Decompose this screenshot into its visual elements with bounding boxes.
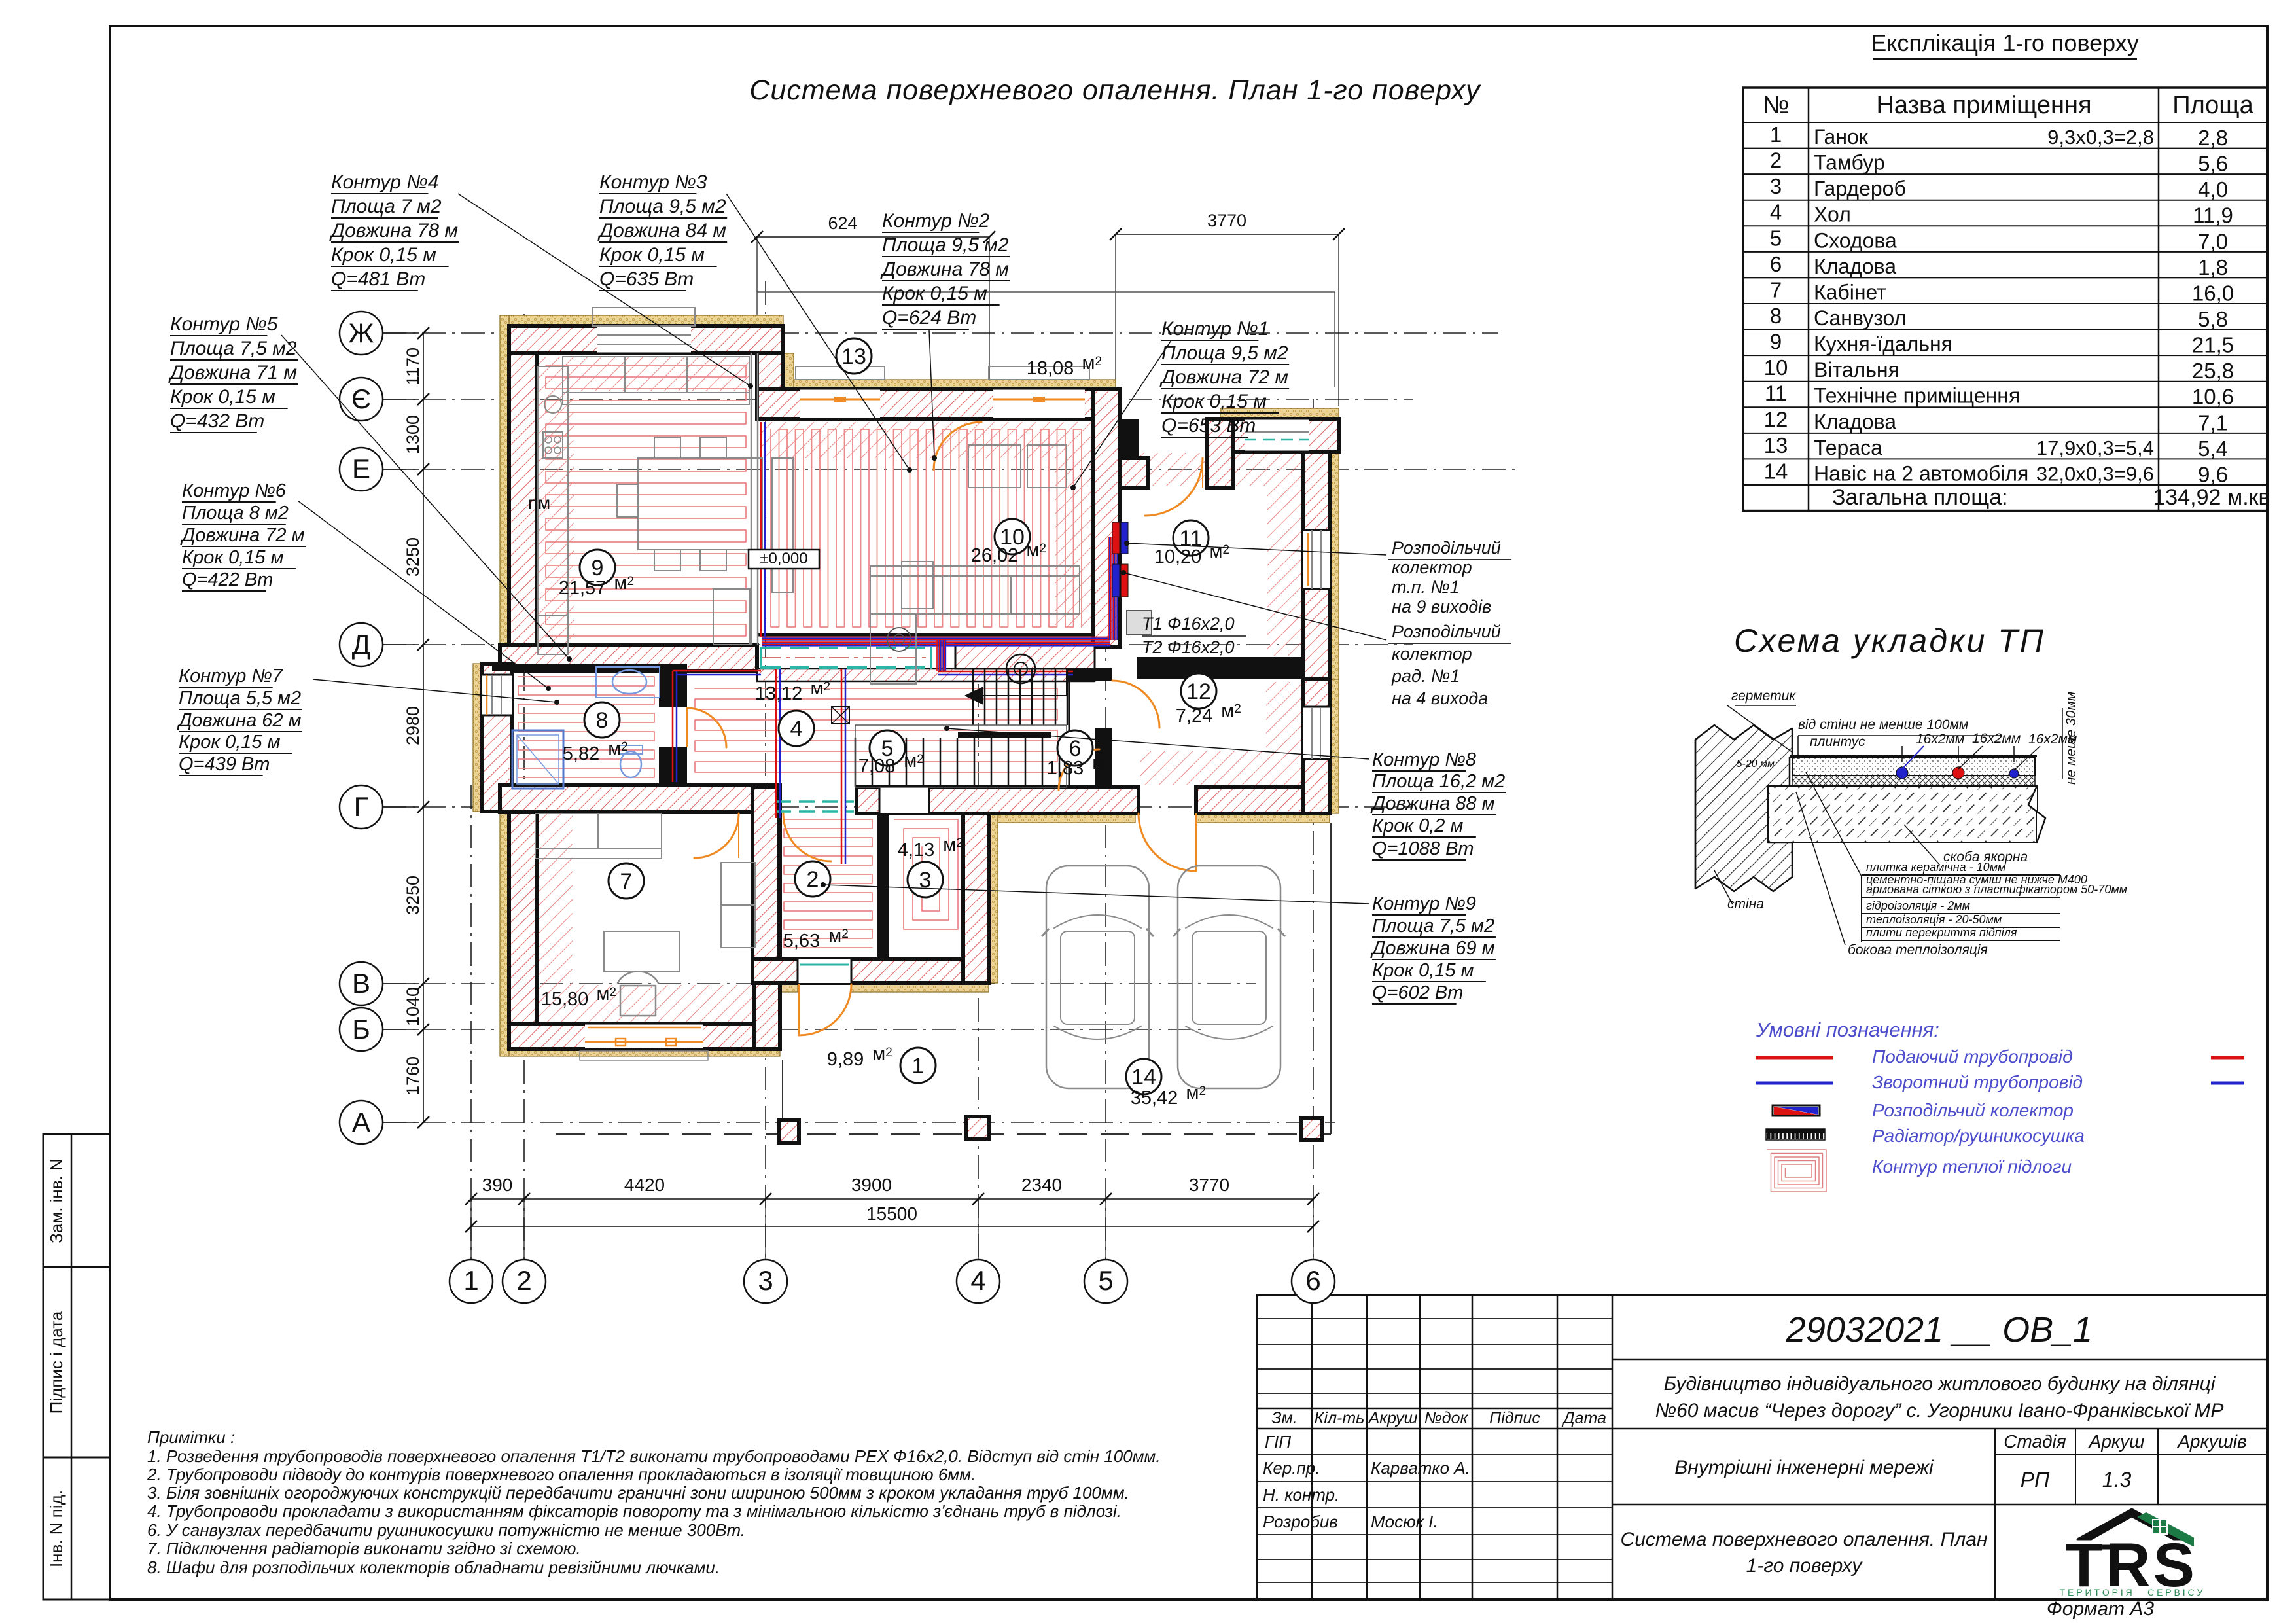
svg-text:2. Трубопроводи підводу до кон: 2. Трубопроводи підводу до контурів пове… — [147, 1465, 976, 1484]
svg-text:Крок 0,15 м: Крок 0,15 м — [882, 283, 987, 304]
svg-text:Площа 7,5 м2: Площа 7,5 м2 — [170, 338, 297, 359]
svg-text:Площа 7,5 м2: Площа 7,5 м2 — [1372, 916, 1494, 936]
svg-text:Інв. N під.: Інв. N під. — [46, 1490, 66, 1567]
svg-text:№: № — [1763, 92, 1790, 119]
svg-text:№док: №док — [1424, 1409, 1469, 1427]
svg-text:Q=481 Вт: Q=481 Вт — [331, 268, 425, 290]
svg-text:Площа: Площа — [2172, 92, 2253, 119]
svg-text:14: 14 — [1764, 459, 1788, 483]
svg-text:2980: 2980 — [403, 706, 423, 745]
svg-text:м: м — [872, 1044, 885, 1065]
svg-text:Подаючий трубопровід: Подаючий трубопровід — [1872, 1046, 2073, 1067]
svg-text:Довжина 78 м: Довжина 78 м — [329, 220, 458, 241]
svg-text:Розробив: Розробив — [1263, 1512, 1338, 1531]
svg-text:Тераса: Тераса — [1814, 436, 1882, 459]
svg-text:1,8: 1,8 — [2198, 255, 2228, 279]
svg-text:плинтус: плинтус — [1810, 734, 1865, 749]
svg-text:2: 2 — [610, 986, 617, 999]
svg-text:Е: Е — [352, 454, 370, 484]
svg-text:Кер.пр.: Кер.пр. — [1263, 1458, 1320, 1478]
svg-text:Тамбур: Тамбур — [1814, 151, 1885, 175]
svg-text:Контур №2: Контур №2 — [882, 210, 990, 232]
svg-text:Аркушів: Аркушів — [2176, 1431, 2247, 1452]
svg-text:1. Розведення трубопроводів по: 1. Розведення трубопроводів поверхневого… — [147, 1446, 1161, 1466]
svg-text:Площа 7 м2: Площа 7 м2 — [331, 196, 442, 217]
svg-text:колектор: колектор — [1392, 558, 1472, 577]
svg-text:не меше 30мм: не меше 30мм — [2064, 692, 2079, 785]
svg-text:Вітальня: Вітальня — [1814, 358, 1899, 382]
svg-text:1300: 1300 — [403, 415, 423, 454]
svg-text:Контур №6: Контур №6 — [182, 480, 287, 501]
svg-text:624: 624 — [828, 213, 857, 233]
svg-text:134,92 м.кв: 134,92 м.кв — [2153, 485, 2270, 510]
svg-text:м: м — [1082, 353, 1095, 374]
svg-text:Б: Б — [352, 1014, 370, 1044]
svg-text:на 9 виходів: на 9 виходів — [1392, 597, 1491, 616]
svg-text:6: 6 — [1770, 252, 1782, 276]
svg-text:13,12: 13,12 — [755, 683, 803, 704]
svg-text:9,3х0,3=2,8: 9,3х0,3=2,8 — [2047, 126, 2154, 149]
svg-text:4. Трубопроводи прокладати з в: 4. Трубопроводи прокладати з використанн… — [147, 1501, 1122, 1521]
svg-text:2: 2 — [807, 867, 819, 892]
svg-text:Довжина 62 м: Довжина 62 м — [177, 710, 302, 731]
svg-text:Система поверхневого опаленн: Система поверхневого опалення. План 1-го… — [749, 75, 1481, 106]
svg-text:Зам. інв. N: Зам. інв. N — [46, 1158, 66, 1243]
svg-text:2: 2 — [621, 740, 628, 754]
svg-text:5,63: 5,63 — [783, 931, 820, 952]
svg-text:Площа 5,5 м2: Площа 5,5 м2 — [179, 688, 301, 709]
svg-text:2: 2 — [1105, 755, 1112, 768]
svg-text:пм: пм — [528, 493, 550, 513]
svg-text:2: 2 — [627, 575, 635, 588]
svg-text:Контур №3: Контур №3 — [599, 171, 707, 193]
svg-text:9: 9 — [592, 556, 604, 580]
svg-text:Кухня-їдальня: Кухня-їдальня — [1814, 332, 1952, 356]
svg-text:Сходова: Сходова — [1814, 228, 1897, 252]
svg-text:Т1 Ф16х2,0: Т1 Ф16х2,0 — [1142, 614, 1235, 633]
svg-text:6: 6 — [1305, 1265, 1320, 1296]
svg-text:3250: 3250 — [403, 537, 423, 577]
svg-text:плити перекриття підпіля: плити перекриття підпіля — [1866, 926, 2017, 939]
svg-text:14: 14 — [1131, 1065, 1156, 1090]
svg-text:7,08: 7,08 — [858, 756, 895, 777]
svg-text:Q=635 Вт: Q=635 Вт — [599, 268, 694, 290]
svg-text:Підпис і дата: Підпис і дата — [46, 1311, 66, 1414]
svg-text:Крок 0,15 м: Крок 0,15 м — [1161, 391, 1267, 412]
svg-text:1-го поверху: 1-го поверху — [1746, 1555, 1863, 1577]
svg-text:м: м — [1027, 540, 1040, 561]
svg-text:Довжина 72 м: Довжина 72 м — [1159, 366, 1288, 388]
svg-text:Д: Д — [352, 629, 370, 660]
svg-text:13: 13 — [841, 344, 866, 369]
svg-text:2: 2 — [1223, 543, 1230, 557]
svg-text:2: 2 — [841, 927, 849, 941]
svg-text:м: м — [608, 738, 621, 759]
svg-text:Крок 0,15 м: Крок 0,15 м — [331, 244, 436, 266]
svg-text:4,0: 4,0 — [2198, 177, 2228, 202]
svg-text:бокова теплоізоляція: бокова теплоізоляція — [1848, 942, 1988, 957]
svg-text:Акруш: Акруш — [1368, 1409, 1418, 1427]
svg-text:Карватко А.: Карватко А. — [1371, 1458, 1470, 1478]
svg-text:Технічне приміщення: Технічне приміщення — [1814, 384, 2020, 408]
svg-text:1170: 1170 — [403, 348, 423, 385]
svg-text:Аркуш: Аркуш — [2088, 1431, 2145, 1452]
svg-text:25,8: 25,8 — [2192, 359, 2234, 383]
svg-text:5,4: 5,4 — [2198, 437, 2228, 461]
svg-text:3: 3 — [1770, 174, 1782, 198]
svg-text:Q=602 Вт: Q=602 Вт — [1372, 982, 1463, 1003]
svg-text:5,82: 5,82 — [563, 743, 599, 764]
svg-text:4420: 4420 — [624, 1175, 665, 1195]
svg-text:Зм.: Зм. — [1271, 1409, 1297, 1427]
svg-text:Підпис: Підпис — [1489, 1409, 1540, 1427]
svg-text:4: 4 — [790, 717, 803, 741]
svg-text:2: 2 — [516, 1265, 531, 1296]
svg-text:Загальна площа:: Загальна площа: — [1832, 485, 2008, 510]
svg-text:4: 4 — [1770, 200, 1782, 224]
svg-text:35,42: 35,42 — [1131, 1088, 1178, 1109]
svg-text:6. У санвузлах передбачити руш: 6. У санвузлах передбачити рушникосушки … — [147, 1520, 745, 1540]
svg-text:7,24: 7,24 — [1176, 705, 1212, 726]
svg-text:Кладова: Кладова — [1814, 410, 1896, 433]
svg-text:Q=1088 Вт: Q=1088 Вт — [1372, 838, 1474, 859]
svg-text:9,89: 9,89 — [827, 1049, 864, 1070]
svg-text:від стіни не менше 100мм: від стіни не менше 100мм — [1798, 717, 1968, 732]
svg-text:9: 9 — [1770, 330, 1782, 354]
svg-text:2: 2 — [1040, 542, 1047, 556]
svg-text:Площа 9,5 м2: Площа 9,5 м2 — [1161, 342, 1288, 364]
svg-text:Система поверхневого опалення.: Система поверхневого опалення. План — [1621, 1529, 1988, 1550]
svg-text:Довжина 78 м: Довжина 78 м — [880, 259, 1009, 280]
svg-text:3900: 3900 — [851, 1175, 892, 1195]
svg-text:Q=439 Вт: Q=439 Вт — [179, 754, 270, 775]
svg-text:РП: РП — [2021, 1468, 2050, 1491]
svg-text:Q=432 Вт: Q=432 Вт — [170, 410, 264, 432]
svg-text:2: 2 — [917, 753, 924, 766]
svg-text:Q=653 Вт: Q=653 Вт — [1161, 415, 1256, 437]
svg-text:Площа 8 м2: Площа 8 м2 — [182, 503, 289, 524]
svg-text:Контур №5: Контур №5 — [170, 313, 278, 335]
svg-text:м: м — [943, 834, 956, 855]
svg-text:плитка керамічна - 10мм: плитка керамічна - 10мм — [1866, 861, 2005, 874]
svg-text:Хол: Хол — [1814, 203, 1851, 226]
svg-text:Крок 0,15 м: Крок 0,15 м — [182, 547, 284, 568]
svg-text:5,8: 5,8 — [2198, 307, 2228, 331]
svg-text:Навіс на 2 автомобіля: Навіс на 2 автомобіля — [1814, 461, 2028, 485]
svg-text:8: 8 — [1770, 304, 1782, 328]
svg-text:12: 12 — [1186, 679, 1211, 704]
svg-text:10,6: 10,6 — [2192, 385, 2234, 409]
svg-text:А: А — [352, 1107, 370, 1137]
svg-text:32,0х0,3=9,6: 32,0х0,3=9,6 — [2036, 462, 2154, 485]
svg-text:Зворотний трубопровід: Зворотний трубопровід — [1872, 1072, 2083, 1092]
svg-text:3250: 3250 — [403, 876, 423, 915]
svg-text:16,0: 16,0 — [2192, 281, 2234, 305]
svg-text:15500: 15500 — [866, 1204, 917, 1224]
svg-text:Площа 9,5 м2: Площа 9,5 м2 — [882, 234, 1009, 256]
svg-text:№60 масив “Через дорогу” с. Уг: №60 масив “Через дорогу” с. Угорники Іва… — [1655, 1400, 2224, 1421]
svg-text:3: 3 — [758, 1265, 773, 1296]
svg-text:5,6: 5,6 — [2198, 152, 2228, 176]
svg-text:3770: 3770 — [1207, 211, 1246, 230]
svg-text:Контур №8: Контур №8 — [1372, 749, 1476, 770]
svg-text:7,1: 7,1 — [2198, 410, 2228, 435]
svg-text:26,02: 26,02 — [971, 545, 1019, 566]
svg-text:м: м — [1092, 753, 1105, 774]
svg-text:Умовні позначення:: Умовні позначення: — [1756, 1018, 1939, 1041]
svg-text:1: 1 — [1770, 122, 1782, 147]
svg-text:Будівництво індивідуального жи: Будівництво індивідуального житлового бу… — [1664, 1373, 2216, 1395]
svg-text:Є: Є — [351, 383, 371, 414]
svg-text:8. Шафи для розподільчих колек: 8. Шафи для розподільчих колекторів обла… — [147, 1558, 720, 1577]
svg-text:1.3: 1.3 — [2102, 1468, 2132, 1491]
svg-text:Розподільчий: Розподільчий — [1392, 622, 1501, 641]
svg-text:Контур №1: Контур №1 — [1161, 318, 1269, 340]
svg-text:13: 13 — [1764, 433, 1788, 457]
svg-text:Стадія: Стадія — [2004, 1431, 2066, 1452]
svg-text:Г: Г — [354, 791, 369, 822]
svg-text:2340: 2340 — [1021, 1175, 1062, 1195]
svg-text:Контур №9: Контур №9 — [1372, 893, 1476, 914]
svg-text:10,20: 10,20 — [1154, 546, 1202, 567]
svg-text:Крок 0,15 м: Крок 0,15 м — [170, 386, 275, 408]
svg-text:теплоізоляція - 20-50мм: теплоізоляція - 20-50мм — [1866, 913, 2002, 926]
svg-text:Назва приміщення: Назва приміщення — [1876, 92, 2091, 119]
svg-text:Ж: Ж — [349, 317, 374, 348]
svg-text:Площа 16,2 м2: Площа 16,2 м2 — [1372, 771, 1505, 792]
svg-text:Контур №4: Контур №4 — [331, 171, 438, 193]
svg-text:Контур теплої підлоги: Контур теплої підлоги — [1872, 1156, 2072, 1177]
svg-text:Крок 0,2 м: Крок 0,2 м — [1372, 815, 1463, 836]
svg-text:на 4 вихода: на 4 вихода — [1392, 688, 1488, 708]
svg-text:Гардероб: Гардероб — [1814, 177, 1906, 200]
svg-text:16х2мм: 16х2мм — [1972, 731, 2021, 746]
svg-text:Кабінет: Кабінет — [1814, 280, 1886, 304]
svg-text:7. Підключення радіаторів вико: 7. Підключення радіаторів виконати згідн… — [147, 1539, 581, 1558]
svg-text:15,80: 15,80 — [541, 989, 589, 1010]
svg-text:2: 2 — [1095, 355, 1103, 368]
svg-text:Дата: Дата — [1561, 1409, 1606, 1427]
svg-text:18,08: 18,08 — [1027, 358, 1074, 379]
svg-text:2: 2 — [1770, 149, 1782, 173]
svg-text:м: м — [828, 925, 841, 946]
svg-text:Санвузол: Санвузол — [1814, 306, 1906, 330]
svg-text:В: В — [352, 968, 370, 999]
svg-text:5-20 мм: 5-20 мм — [1737, 758, 1775, 770]
svg-text:12: 12 — [1764, 407, 1788, 431]
svg-text:ГІП: ГІП — [1265, 1432, 1291, 1452]
svg-text:Довжина 69 м: Довжина 69 м — [1370, 938, 1495, 959]
svg-text:2: 2 — [824, 680, 831, 694]
svg-text:Т2 Ф16х2,0: Т2 Ф16х2,0 — [1142, 637, 1235, 657]
svg-text:4,13: 4,13 — [898, 840, 934, 861]
svg-text:колектор: колектор — [1392, 644, 1472, 664]
svg-text:21,57: 21,57 — [559, 578, 607, 599]
svg-text:2: 2 — [1199, 1084, 1207, 1098]
svg-text:Примітки :: Примітки : — [147, 1427, 235, 1447]
svg-text:5: 5 — [1098, 1265, 1113, 1296]
svg-text:Мосюк І.: Мосюк І. — [1371, 1512, 1438, 1531]
svg-text:Розподільчий: Розподільчий — [1392, 538, 1501, 558]
svg-text:7: 7 — [1770, 277, 1782, 302]
svg-text:7: 7 — [620, 869, 633, 894]
svg-text:Внутрішні інженерні мережі: Внутрішні інженерні мережі — [1674, 1457, 1934, 1478]
svg-text:11: 11 — [1765, 382, 1787, 406]
svg-text:Довжина 88 м: Довжина 88 м — [1370, 793, 1495, 814]
svg-text:29032021 __ ОВ_1: 29032021 __ ОВ_1 — [1786, 1310, 2093, 1349]
svg-text:армована сіткою з пластифікато: армована сіткою з пластифікатором 50-70м… — [1866, 883, 2127, 896]
svg-text:Q=624 Вт: Q=624 Вт — [882, 307, 976, 329]
svg-text:м: м — [597, 984, 610, 1005]
svg-text:м: м — [1221, 700, 1234, 721]
svg-text:Кладова: Кладова — [1814, 255, 1896, 278]
svg-text:390: 390 — [482, 1175, 513, 1195]
svg-text:м: м — [614, 573, 627, 594]
svg-text:1: 1 — [463, 1265, 478, 1296]
svg-text:9,6: 9,6 — [2198, 462, 2228, 486]
svg-text:м: м — [811, 678, 824, 699]
svg-text:Довжина 84 м: Довжина 84 м — [597, 220, 726, 241]
svg-text:5: 5 — [1770, 226, 1782, 250]
svg-text:Контур №7: Контур №7 — [179, 666, 284, 687]
svg-text:гідроізоляція - 2мм: гідроізоляція - 2мм — [1866, 899, 1970, 912]
svg-text:м: м — [904, 751, 917, 772]
svg-text:1: 1 — [912, 1054, 925, 1079]
svg-text:Площа 9,5 м2: Площа 9,5 м2 — [599, 196, 726, 217]
svg-text:Крок 0,15 м: Крок 0,15 м — [1372, 960, 1474, 981]
svg-text:Довжина 71 м: Довжина 71 м — [168, 362, 297, 383]
svg-text:Експлікація 1-го поверху: Експлікація 1-го поверху — [1871, 29, 2139, 56]
svg-text:2,8: 2,8 — [2198, 126, 2228, 150]
svg-text:21,5: 21,5 — [2192, 333, 2234, 357]
svg-text:Ганок: Ганок — [1814, 125, 1869, 149]
svg-text:Формат А3: Формат А3 — [2047, 1598, 2154, 1620]
svg-text:т.п. №1: т.п. №1 — [1392, 577, 1460, 597]
svg-text:м: м — [1210, 541, 1223, 562]
svg-text:Кіл-ть: Кіл-ть — [1315, 1409, 1365, 1427]
svg-text:рад. №1: рад. №1 — [1391, 666, 1460, 686]
svg-text:8: 8 — [596, 708, 609, 733]
svg-text:3770: 3770 — [1189, 1175, 1229, 1195]
svg-text:17,9х0,3=5,4: 17,9х0,3=5,4 — [2036, 437, 2154, 459]
svg-text:2: 2 — [956, 836, 963, 850]
svg-text:11,9: 11,9 — [2193, 204, 2233, 228]
svg-text:1,83: 1,83 — [1047, 758, 1084, 779]
svg-text:Т Е Р И Т О Р І Я С Е Р В: Т Е Р И Т О Р І Я С Е Р В І С У — [2060, 1587, 2203, 1597]
svg-text:Н. контр.: Н. контр. — [1263, 1485, 1339, 1505]
svg-text:7,0: 7,0 — [2198, 229, 2228, 253]
svg-text:2: 2 — [1234, 702, 1241, 716]
svg-text:Крок 0,15 м: Крок 0,15 м — [599, 244, 705, 266]
svg-text:Радіатор/рушникосушка: Радіатор/рушникосушка — [1872, 1126, 2085, 1146]
svg-text:16х2мм: 16х2мм — [1916, 732, 1964, 747]
svg-text:10: 10 — [1764, 355, 1788, 380]
svg-text:м: м — [1186, 1082, 1199, 1103]
svg-text:Крок 0,15 м: Крок 0,15 м — [179, 732, 281, 753]
svg-text:±0,000: ±0,000 — [760, 550, 807, 567]
svg-text:2: 2 — [885, 1046, 892, 1060]
svg-text:4: 4 — [970, 1265, 985, 1296]
svg-text:Розподільчий колектор: Розподільчий колектор — [1872, 1100, 2074, 1120]
svg-text:1760: 1760 — [403, 1056, 423, 1096]
svg-text:Q=422 Вт: Q=422 Вт — [182, 569, 273, 590]
svg-text:Довжина 72 м: Довжина 72 м — [180, 525, 305, 546]
svg-text:1040: 1040 — [403, 987, 423, 1026]
svg-text:герметик: герметик — [1731, 688, 1796, 704]
svg-text:Схема укладки ТП: Схема укладки ТП — [1734, 622, 2045, 659]
svg-text:3. Біля зовнішніх огороджуючих: 3. Біля зовнішніх огороджуючих конструкц… — [147, 1483, 1129, 1503]
